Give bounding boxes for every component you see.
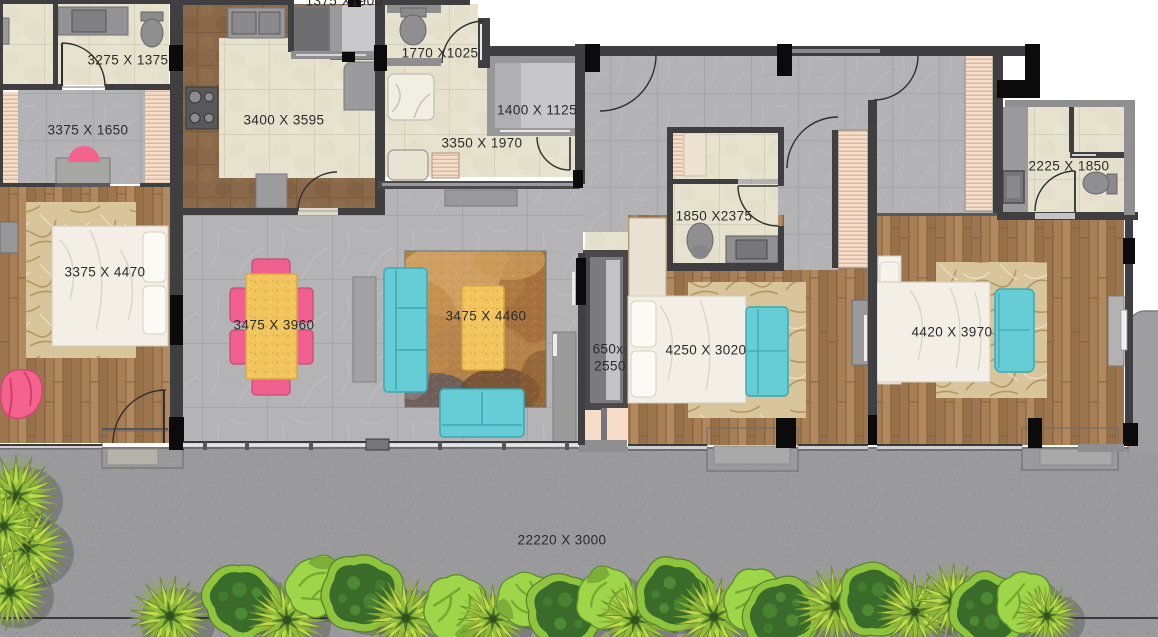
svg-text:4420 X 3970: 4420 X 3970	[912, 325, 993, 340]
svg-text:4250 X 3020: 4250 X 3020	[666, 343, 747, 358]
svg-text:3475 X 3960: 3475 X 3960	[234, 318, 315, 333]
svg-text:1770 X1025: 1770 X1025	[402, 46, 479, 61]
svg-text:3275 X 1375: 3275 X 1375	[88, 53, 169, 68]
svg-text:22220 X 3000: 22220 X 3000	[518, 533, 607, 548]
svg-text:3475 X 4460: 3475 X 4460	[446, 309, 527, 324]
svg-text:2225 X 1850: 2225 X 1850	[1029, 159, 1110, 174]
svg-text:650x: 650x	[593, 342, 624, 357]
svg-text:2550: 2550	[594, 359, 626, 374]
svg-text:1850 X2375: 1850 X2375	[676, 209, 753, 224]
svg-text:3400 X 3595: 3400 X 3595	[244, 113, 325, 128]
svg-text:1375 X1900: 1375 X1900	[306, 0, 383, 9]
svg-text:3350 X 1970: 3350 X 1970	[442, 136, 523, 151]
svg-text:3375 X 1650: 3375 X 1650	[48, 123, 129, 138]
svg-text:3375 X 4470: 3375 X 4470	[65, 265, 146, 280]
svg-text:1400 X 1125: 1400 X 1125	[497, 103, 577, 118]
